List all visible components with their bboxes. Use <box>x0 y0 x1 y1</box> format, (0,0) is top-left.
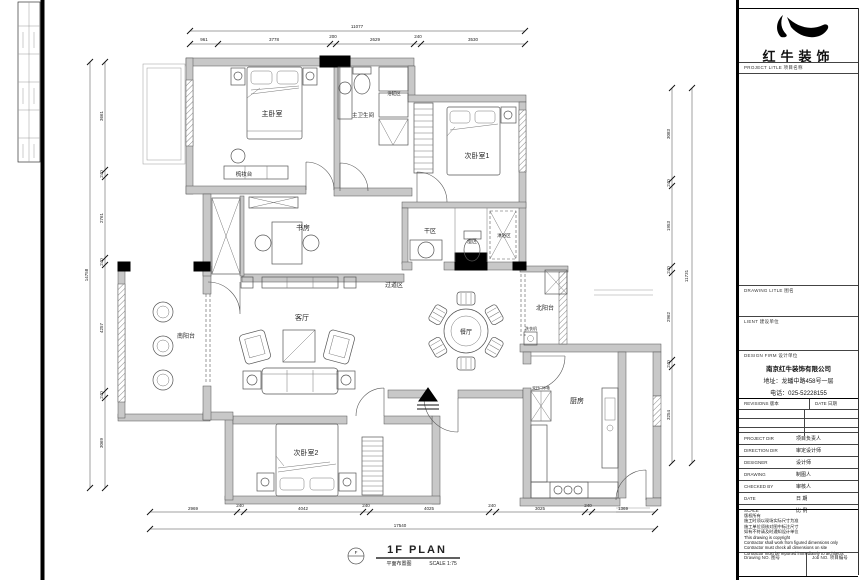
field-label-en: DRAWING <box>739 472 796 477</box>
room-label: 平面布置图 <box>386 560 411 567</box>
signature-fields: PROJECT DIR项目负责人DIRECTION DIR审定设计师DESIGN… <box>739 432 858 516</box>
dim-total-label: 14758 <box>84 268 89 281</box>
revisions-label: REVISIONS 版本 <box>739 399 810 409</box>
company-name: 南京红牛装饰有限公司 <box>739 363 858 373</box>
room-label: 淋浴区 <box>497 232 511 239</box>
dim-label: 2962 <box>666 311 671 322</box>
dim-label: 3025 <box>535 506 546 511</box>
revisions-table: REVISIONS 版本 DATE 日期 <box>739 398 858 436</box>
field-row: DESIGNER设计师 <box>739 456 858 468</box>
field-label-en: DESIGNER <box>739 460 796 465</box>
master-bath-fixtures <box>338 67 408 145</box>
room-label: 过道区 <box>385 281 403 289</box>
dressing-table <box>224 149 288 179</box>
room-label: 湿区 <box>467 238 477 245</box>
dim-label: 4025 <box>424 506 435 511</box>
field-label-cn: 制图人 <box>796 471 811 478</box>
room-label: 主卫生间 <box>352 111 374 119</box>
field-label-en: DATE <box>739 496 796 501</box>
room-label: F <box>355 550 358 555</box>
bedroom1-furniture <box>414 103 516 175</box>
dim-label: 1369 <box>618 506 629 511</box>
dim-label: 240 <box>414 34 422 39</box>
design-firm-label: DESIGN FIRM 设计单位 <box>739 351 858 359</box>
room-label: 双开门冰箱 <box>532 385 550 390</box>
title-block-right-border <box>858 8 859 575</box>
company-address: 地址：龙蟠中路458号一层 <box>739 376 858 385</box>
room-label: 客厅 <box>295 313 309 322</box>
field-label-cn: 设计师 <box>796 459 811 466</box>
dim-label: 3254 <box>666 409 671 420</box>
field-label-cn: 项目负责人 <box>796 435 821 442</box>
title-block: 红牛装饰 PROJECT LITLE 项目名称 DRAWING LITLE 图名… <box>736 0 860 580</box>
sheet-border-line <box>41 0 44 580</box>
room-label: 次卧室2 <box>294 448 319 457</box>
master-bedroom-door <box>306 162 334 190</box>
kitchen-door <box>531 356 565 390</box>
date-col-label: DATE 日期 <box>810 399 837 409</box>
south-balcony-items <box>153 302 173 390</box>
client-label: LIENT 建设单位 <box>739 317 858 325</box>
planter-box <box>143 64 185 164</box>
room-label: 次卧室1 <box>465 151 490 160</box>
sofa-set <box>239 329 356 394</box>
drawing-no-label: Drawing NO. 图号 <box>739 553 807 576</box>
dim-label: 240 <box>99 258 104 266</box>
revision-row <box>739 418 858 427</box>
field-row: DATE日 期 <box>739 492 858 504</box>
dim-label: 3083 <box>666 128 671 139</box>
dim-label: 240 <box>666 360 671 368</box>
windows <box>118 80 661 426</box>
room-label: 浴缸区 <box>387 90 401 97</box>
dim-label: 240 <box>99 170 104 178</box>
field-label-en: DIRECTION DIR <box>739 448 796 453</box>
field-label-en: CHECKED BY <box>739 484 796 489</box>
ledge-lines <box>594 290 653 295</box>
doors <box>208 162 650 512</box>
planter-box-inner <box>147 68 181 160</box>
sheet-edge-strip <box>18 0 44 580</box>
walls <box>118 56 661 506</box>
dim-label: 240 <box>236 503 244 508</box>
field-label-cn: 审核人 <box>796 483 811 490</box>
company-phone: 电话：025-52228155 <box>739 388 858 397</box>
room-label: 北阳台 <box>536 304 554 312</box>
dim-label: 2629 <box>370 37 381 42</box>
dim-label: 240 <box>666 266 671 274</box>
bedroom2-door <box>356 388 384 416</box>
room-label: 书房 <box>296 223 310 232</box>
room-label: 干区 <box>424 228 436 235</box>
dim-label: 240 <box>666 179 671 187</box>
dim-label: 240 <box>99 391 104 399</box>
dim-label: 4257 <box>99 322 104 333</box>
dim-label: 240 <box>488 503 496 508</box>
job-no-label: Job NO. 项目编号 <box>807 553 848 576</box>
dim-label: 3530 <box>468 37 479 42</box>
dim-total-label: 17540 <box>394 523 407 528</box>
room-label: 洗衣机 <box>525 325 537 331</box>
dim-label: 3778 <box>269 37 280 42</box>
field-row: CHECKED BY审核人 <box>739 480 858 492</box>
room-label: 梳妆台 <box>236 170 253 178</box>
bull-logo-icon <box>767 11 831 43</box>
hall-door <box>424 398 458 432</box>
revision-row <box>739 409 858 418</box>
field-row: PROJECT DIR项目负责人 <box>739 432 858 444</box>
dim-label: 3661 <box>99 110 104 121</box>
dim-label: 1953 <box>666 220 671 231</box>
notes-block: 版权所有施工时须以现场实际尺寸为准施工单位须核对图中标注尺寸如有不符请及时通知设… <box>739 509 858 553</box>
closet <box>212 198 240 274</box>
dim-total-label: 11731 <box>684 269 689 282</box>
master-bath-door <box>340 163 368 191</box>
room-label: 主卧室 <box>262 109 283 118</box>
bedroom2-furniture <box>257 424 383 496</box>
drawing-sheet: 主卧室主卫生间浴缸区梳妆台次卧室1书房干区湿区淋浴区过道区客厅餐厅北阳台南阳台厨… <box>0 0 860 580</box>
client-row: LIENT 建设单位 <box>739 316 858 351</box>
room-label: 餐厅 <box>460 328 472 336</box>
dim-label: 2969 <box>188 506 199 511</box>
dim-label: 4042 <box>298 506 309 511</box>
field-label-en: PROJECT DIR <box>739 436 796 441</box>
field-row: DIRECTION DIR审定设计师 <box>739 444 858 456</box>
drawing-title-row: DRAWING LITLE 图名 <box>739 285 858 317</box>
dim-label: 3069 <box>99 437 104 448</box>
dim-label: 240 <box>362 503 370 508</box>
project-title-label: PROJECT LITLE 项目名称 <box>739 63 858 71</box>
dim-label: 200 <box>329 34 337 39</box>
field-label-cn: 审定设计师 <box>796 447 821 454</box>
logo-area: 红牛装饰 <box>739 8 858 63</box>
field-label-cn: 日 期 <box>796 495 807 502</box>
floor-plan: 主卧室主卫生间浴缸区梳妆台次卧室1书房干区湿区淋浴区过道区客厅餐厅北阳台南阳台厨… <box>0 0 737 580</box>
openings <box>206 274 525 384</box>
dim-label: 2761 <box>99 212 104 223</box>
design-firm-row: DESIGN FIRM 设计单位 南京红牛装饰有限公司 地址：龙蟠中路458号一… <box>739 350 858 399</box>
dim-label: 961 <box>200 37 208 42</box>
dim-label: 240 <box>584 503 592 508</box>
drawing-title-label: DRAWING LITLE 图名 <box>739 286 858 294</box>
number-row: Drawing NO. 图号 Job NO. 项目编号 <box>739 552 858 577</box>
field-row: DRAWING制图人 <box>739 468 858 480</box>
dim-total-label: 11077 <box>351 24 364 29</box>
bedroom1-door <box>417 172 447 202</box>
room-label: 南阳台 <box>177 332 195 340</box>
room-label: 1F PLAN <box>387 544 447 556</box>
master-bed <box>231 67 317 139</box>
room-label: 厨房 <box>570 396 584 405</box>
study-door <box>208 282 240 314</box>
room-label: SCALE 1:75 <box>429 561 457 567</box>
